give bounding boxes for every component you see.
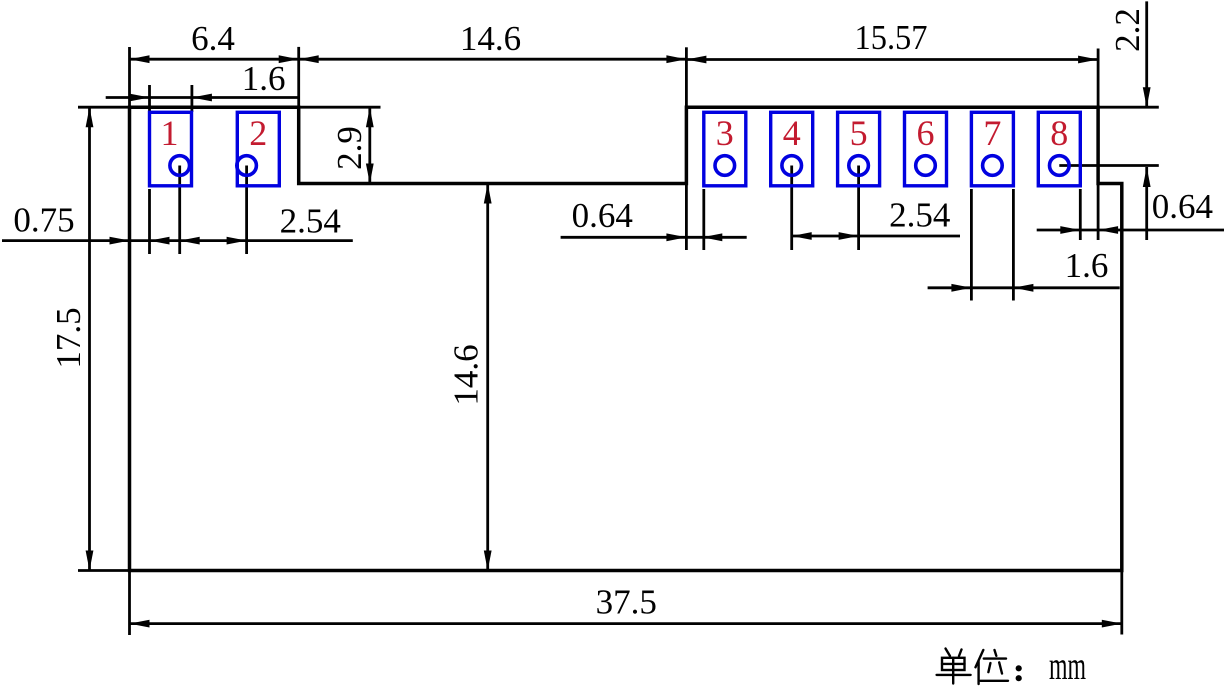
svg-text:3: 3 [716,113,734,153]
svg-text:6: 6 [917,113,935,153]
svg-text:mm: mm [1049,643,1086,688]
svg-text:4: 4 [783,113,801,153]
svg-text:15.57: 15.57 [855,18,928,57]
svg-text:1: 1 [161,113,179,153]
svg-text:14.6: 14.6 [447,344,486,405]
svg-text:2: 2 [249,113,267,153]
svg-text:17.5: 17.5 [49,307,88,368]
svg-text:6.4: 6.4 [191,19,235,58]
svg-text:8: 8 [1050,113,1068,153]
svg-text:37.5: 37.5 [596,583,657,622]
svg-text:2.9: 2.9 [330,126,369,170]
svg-text:0.64: 0.64 [1152,187,1213,226]
svg-text:1.6: 1.6 [242,59,286,98]
svg-text:2.54: 2.54 [280,202,341,241]
svg-text:2.2: 2.2 [1108,8,1147,52]
svg-text:2.54: 2.54 [889,196,950,235]
svg-text:14.6: 14.6 [460,19,521,58]
svg-text:1.6: 1.6 [1065,246,1109,285]
svg-text:7: 7 [983,113,1001,153]
svg-text:0.75: 0.75 [13,201,74,240]
svg-text:5: 5 [850,113,868,153]
svg-text:0.64: 0.64 [572,196,633,235]
